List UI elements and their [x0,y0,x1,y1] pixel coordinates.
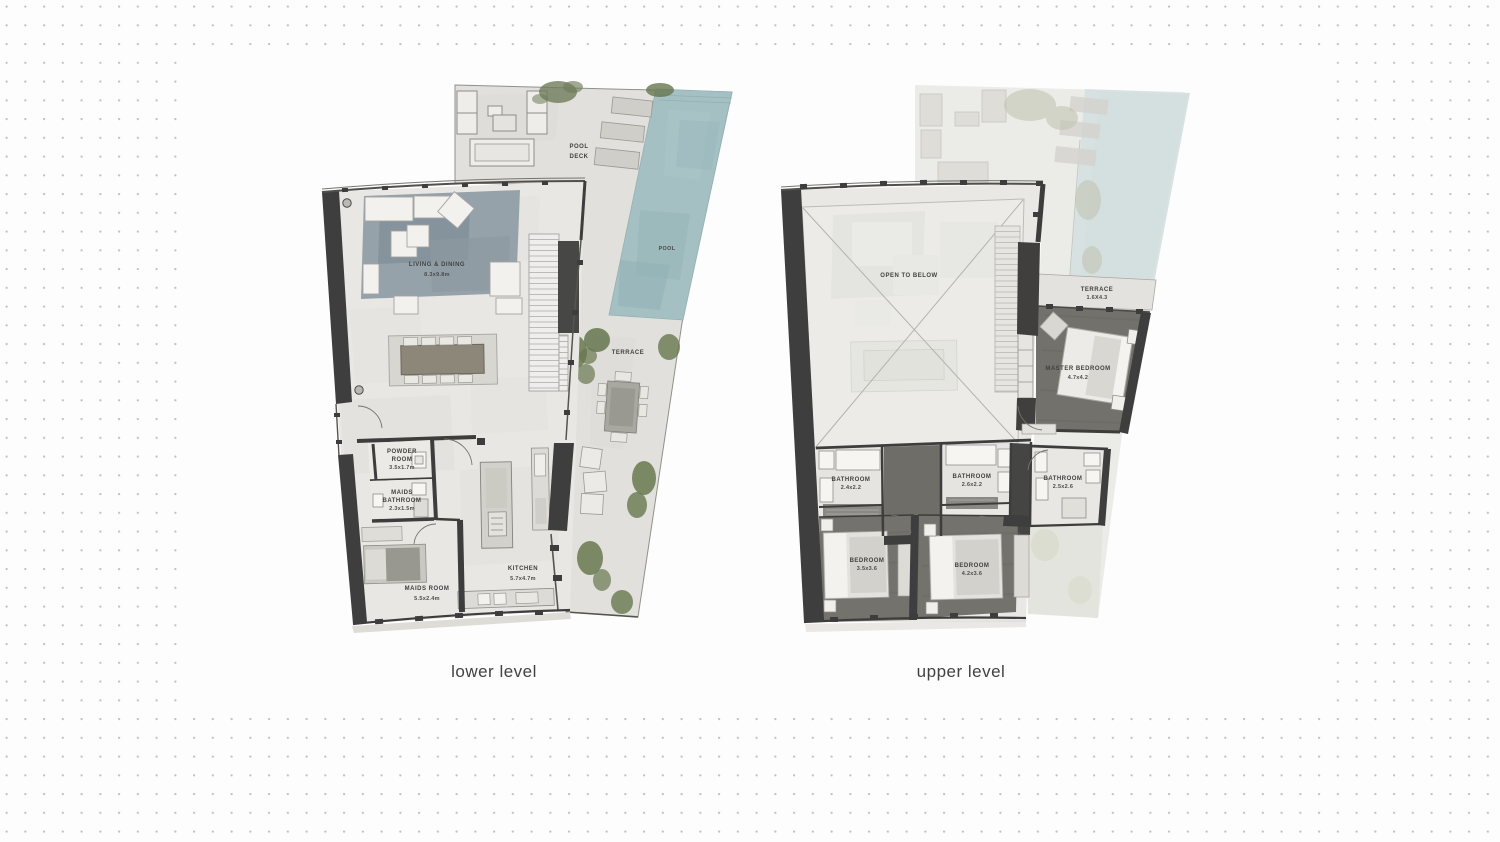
svg-text:BEDROOM: BEDROOM [955,563,990,569]
svg-text:MAIDS ROOM: MAIDS ROOM [405,586,450,592]
svg-text:BEDROOM: BEDROOM [850,558,885,564]
svg-text:BATHROOM: BATHROOM [832,477,871,483]
svg-text:POWDER: POWDER [387,449,417,455]
svg-text:POOL: POOL [659,246,676,252]
svg-text:ROOM: ROOM [392,457,413,463]
svg-text:3.5x1.7m: 3.5x1.7m [389,465,415,471]
svg-text:BATHROOM: BATHROOM [383,498,422,504]
svg-text:2.4x2.2: 2.4x2.2 [841,485,861,491]
svg-text:lower level: lower level [451,662,537,681]
svg-text:KITCHEN: KITCHEN [508,566,538,572]
svg-text:1.6X4.3: 1.6X4.3 [1086,295,1107,301]
svg-text:3.5x3.6: 3.5x3.6 [857,566,877,572]
svg-text:BATHROOM: BATHROOM [953,474,992,480]
svg-text:4.2x3.6: 4.2x3.6 [962,571,982,577]
svg-text:upper level: upper level [917,662,1006,681]
svg-text:DECK: DECK [569,154,588,160]
svg-text:OPEN TO BELOW: OPEN TO BELOW [880,273,937,279]
svg-text:2.3x1.5m: 2.3x1.5m [389,506,415,512]
svg-text:2.6x2.2: 2.6x2.2 [962,482,982,488]
svg-text:TERRACE: TERRACE [612,350,645,356]
svg-text:LIVING & DINING: LIVING & DINING [409,262,465,268]
svg-text:2.5x2.6: 2.5x2.6 [1053,484,1073,490]
svg-text:5.7x4.7m: 5.7x4.7m [510,576,536,582]
svg-text:TERRACE: TERRACE [1081,287,1114,293]
svg-text:POOL: POOL [569,144,588,150]
svg-text:4.7x4.2: 4.7x4.2 [1068,375,1088,381]
svg-text:8.3x9.8m: 8.3x9.8m [424,272,450,278]
svg-text:MASTER BEDROOM: MASTER BEDROOM [1045,366,1110,372]
svg-text:MAIDS: MAIDS [391,490,413,496]
svg-text:5.5x2.4m: 5.5x2.4m [414,596,440,602]
svg-text:BATHROOM: BATHROOM [1044,476,1083,482]
